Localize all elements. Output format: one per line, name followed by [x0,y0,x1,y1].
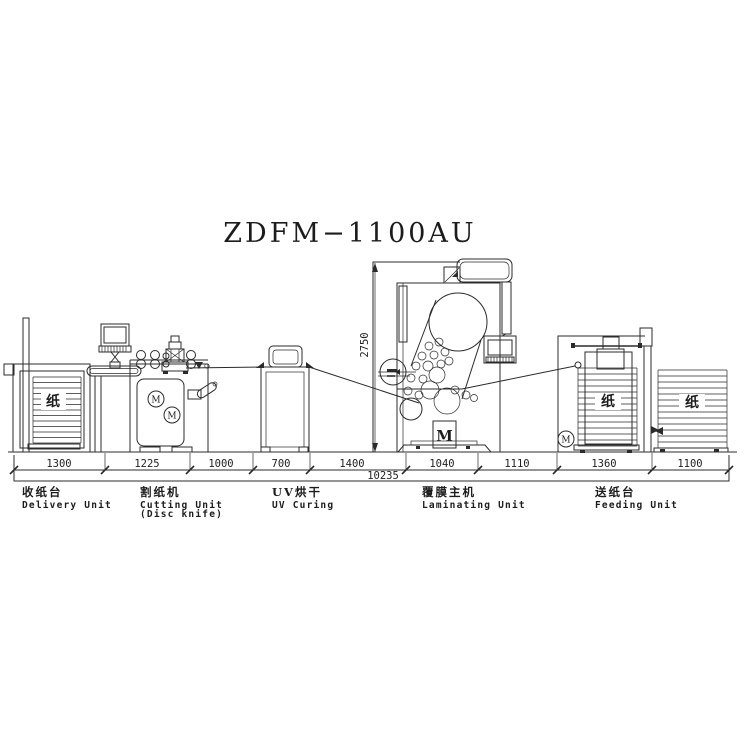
side-clamp [655,427,663,435]
uv-web-cleat [306,362,314,368]
motor-badge: M [164,407,180,423]
svg-text:M: M [436,427,453,445]
laminating-frame [373,262,460,452]
delivery-legs [95,376,101,452]
machine-line-diagram: ZDFM−1100AU 纸 [0,0,750,750]
delivery-mast [23,318,29,452]
monitor-icon [99,324,131,368]
belt-lines [411,300,481,399]
feeding-label-en: Feeding Unit [595,500,678,511]
uv-foot [261,447,270,452]
svg-text:M: M [151,396,160,406]
dim-1100: 1100 [677,458,702,470]
dim-1040: 1040 [429,458,454,470]
paper-label: 纸 [601,393,615,410]
dimension-line: 1300 1225 1000 700 1400 1040 1110 1360 1… [10,453,733,482]
main-motor: M [433,421,456,448]
delivery-arm [188,381,218,399]
dim-1300: 1300 [46,458,71,470]
monitor-mount [110,362,120,368]
cutting-label-zh: 割纸机 [140,485,181,499]
monitor-stand [111,352,119,362]
sheet-pickup-roller [575,362,581,368]
disc-knife-assembly [162,336,188,374]
motor-badge: M [558,431,574,447]
uv-body [261,367,309,452]
motor-badge: M [148,391,164,407]
unit-labels: 收纸台 Delivery Unit 割纸机 Cutting Unit (Disc… [22,485,678,520]
height-dimension: 2750 [359,263,378,452]
svg-text:M: M [167,412,176,422]
feeding-label-zh: 送纸台 [594,485,636,499]
dim-1360: 1360 [591,458,616,470]
cutting-label-en2: (Disc knife) [140,509,223,520]
laminating-label-en: Laminating Unit [422,500,526,511]
uv-web-cleat [256,362,264,368]
dim-1110: 1110 [504,458,529,470]
paper-web-line [186,362,581,403]
uv-unit-drawing [256,346,314,452]
paper-label: 纸 [46,393,60,410]
model-title: ZDFM−1100AU [223,218,476,249]
delivery-unit-drawing: 纸 [4,318,141,452]
laminating-unit-drawing: M [373,259,516,452]
uv-foot [299,447,308,452]
dim-total: 10235 [367,470,399,482]
cutting-cabinet [137,379,184,446]
exhaust-duct [502,282,511,334]
svg-text:M: M [561,436,570,446]
dim-1400: 1400 [339,458,364,470]
delivery-label-en: Delivery Unit [22,500,112,511]
height-dim-label: 2750 [359,332,371,357]
suction-head [603,337,619,349]
feeding-unit-drawing: 纸 M 纸 [558,328,728,453]
laminating-drum [429,293,487,351]
dim-700: 700 [272,458,291,470]
exhaust-hood [457,259,512,282]
cutting-unit-drawing: M M [130,336,218,452]
laminating-label-zh: 覆膜主机 [422,485,476,499]
cutting-deck [130,360,208,452]
dim-1225: 1225 [134,458,159,470]
cutting-foot [172,447,192,452]
delivery-label-zh: 收纸台 [22,485,63,499]
cutting-foot [140,447,160,452]
uv-label-en: UV Curing [272,500,334,511]
feeder-post [644,346,651,452]
diagram-page: ZDFM−1100AU 纸 [0,0,750,750]
paper-label: 纸 [685,394,699,411]
uv-label-zh: UV烘干 [272,485,322,499]
extension-lines [105,453,652,470]
conveyor-belt [90,369,138,374]
dim-1000: 1000 [208,458,233,470]
